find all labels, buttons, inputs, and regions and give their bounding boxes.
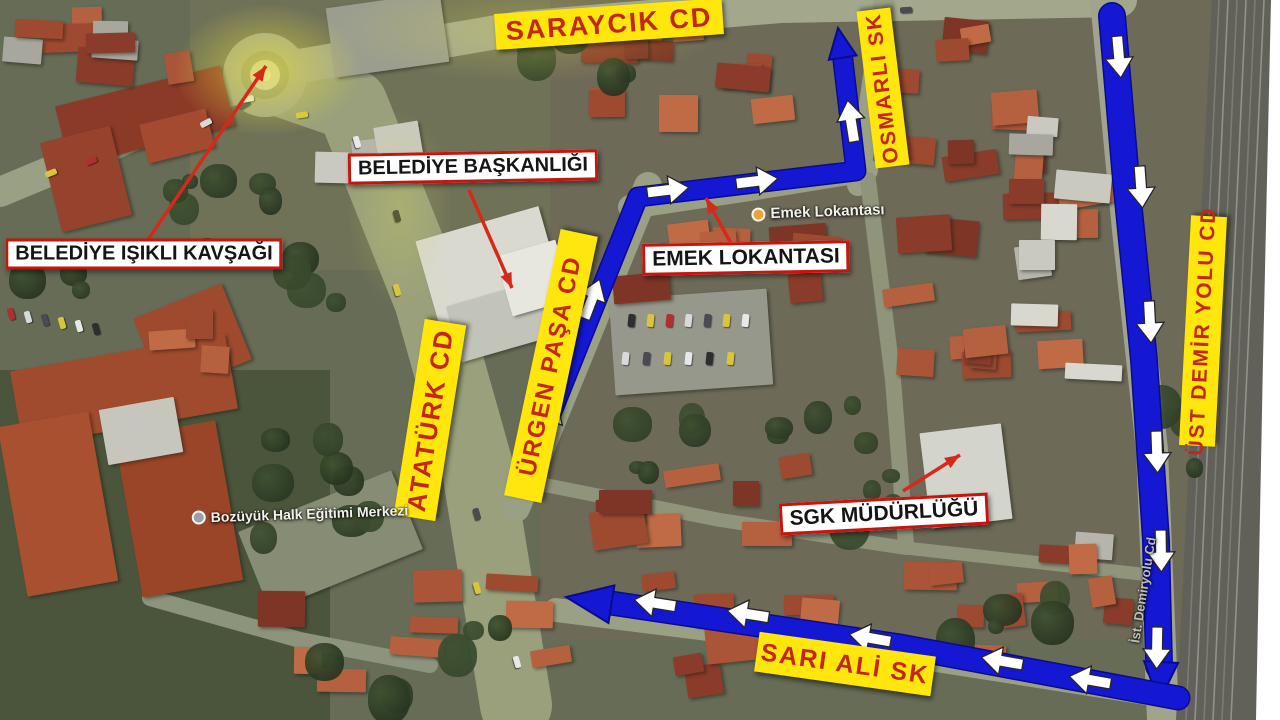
osmarli-sk-label: OSMARLI SK [856, 8, 909, 169]
bozuyuk-halk-egitimi-merkezi-label: Bozüyük Halk Eğitimi Merkezi [191, 502, 408, 526]
emek-lokantasi-label: EMEK LOKANTASI [642, 240, 850, 276]
sgk-mudurlugu-label: SGK MÜDÜRLÜĞÜ [779, 493, 989, 536]
belediye-baskanligi-label: BELEDİYE BAŞKANLIĞI [348, 149, 599, 184]
satellite-map: SARAYCIK CDATATÜRK CDÜRGEN PAŞA CDOSMARL… [0, 0, 1280, 720]
belediye-isikli-kavsagi-label: BELEDİYE IŞIKLI KAVŞAĞI [5, 239, 282, 270]
place-label-text: Bozüyük Halk Eğitimi Merkezi [210, 502, 408, 525]
ist-demiryolu-cd-label: İst. Demiryolu Cd [1127, 536, 1159, 644]
saraycik-cd-label: SARAYCIK CD [494, 0, 724, 50]
place-icon [751, 207, 765, 221]
ust-demir-yolu-cd-label: ÜST DEMİR YOLU CD [1179, 215, 1227, 447]
emek-lokantasi-place-label: Emek Lokantası [751, 201, 885, 223]
urgen-pasa-cd-label: ÜRGEN PAŞA CD [504, 229, 598, 503]
place-label-text: İst. Demiryolu Cd [1127, 536, 1159, 644]
sari-ali-sk-label: SARI ALİ SK [754, 632, 936, 696]
map-labels: SARAYCIK CDATATÜRK CDÜRGEN PAŞA CDOSMARL… [0, 0, 1280, 720]
ataturk-cd-label: ATATÜRK CD [394, 319, 466, 521]
place-icon [192, 510, 206, 524]
place-label-text: Emek Lokantası [770, 201, 885, 222]
